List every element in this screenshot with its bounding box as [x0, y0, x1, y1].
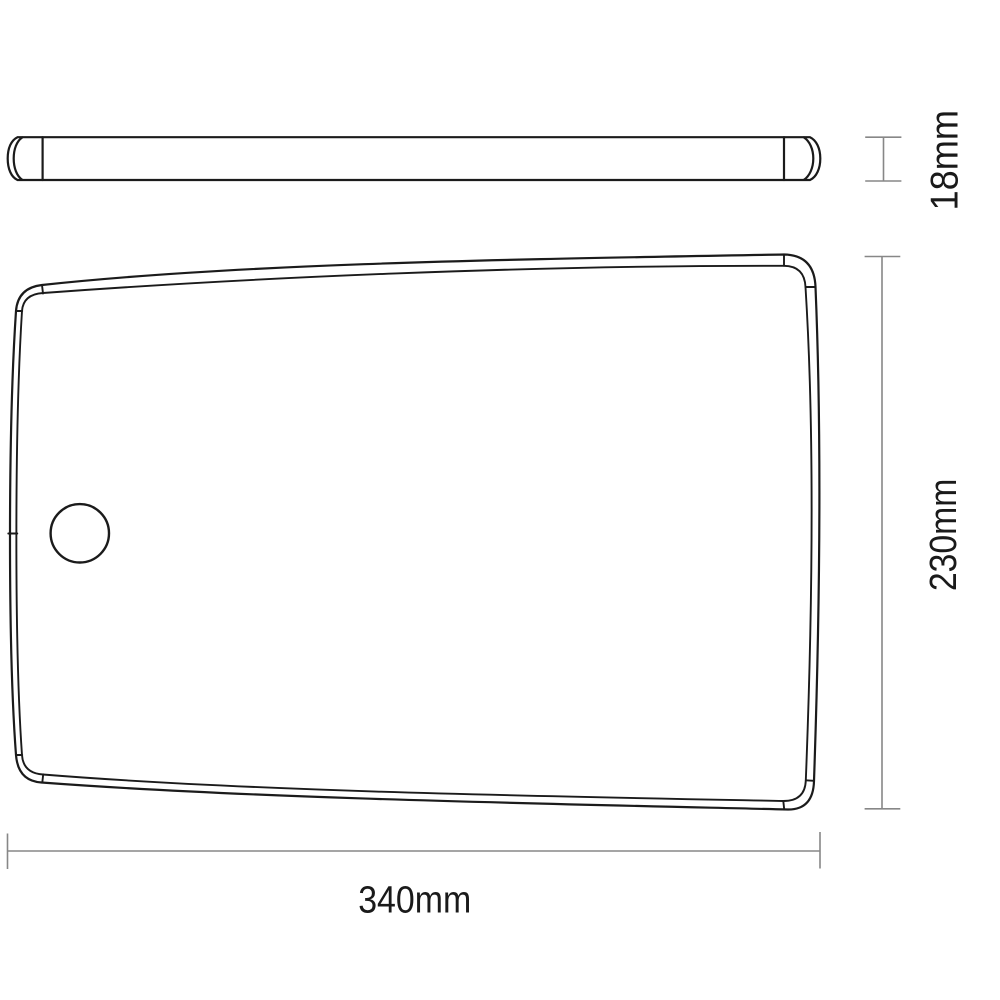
svg-text:340mm: 340mm — [358, 880, 471, 922]
svg-text:18mm: 18mm — [923, 110, 966, 211]
svg-text:230mm: 230mm — [923, 479, 965, 592]
